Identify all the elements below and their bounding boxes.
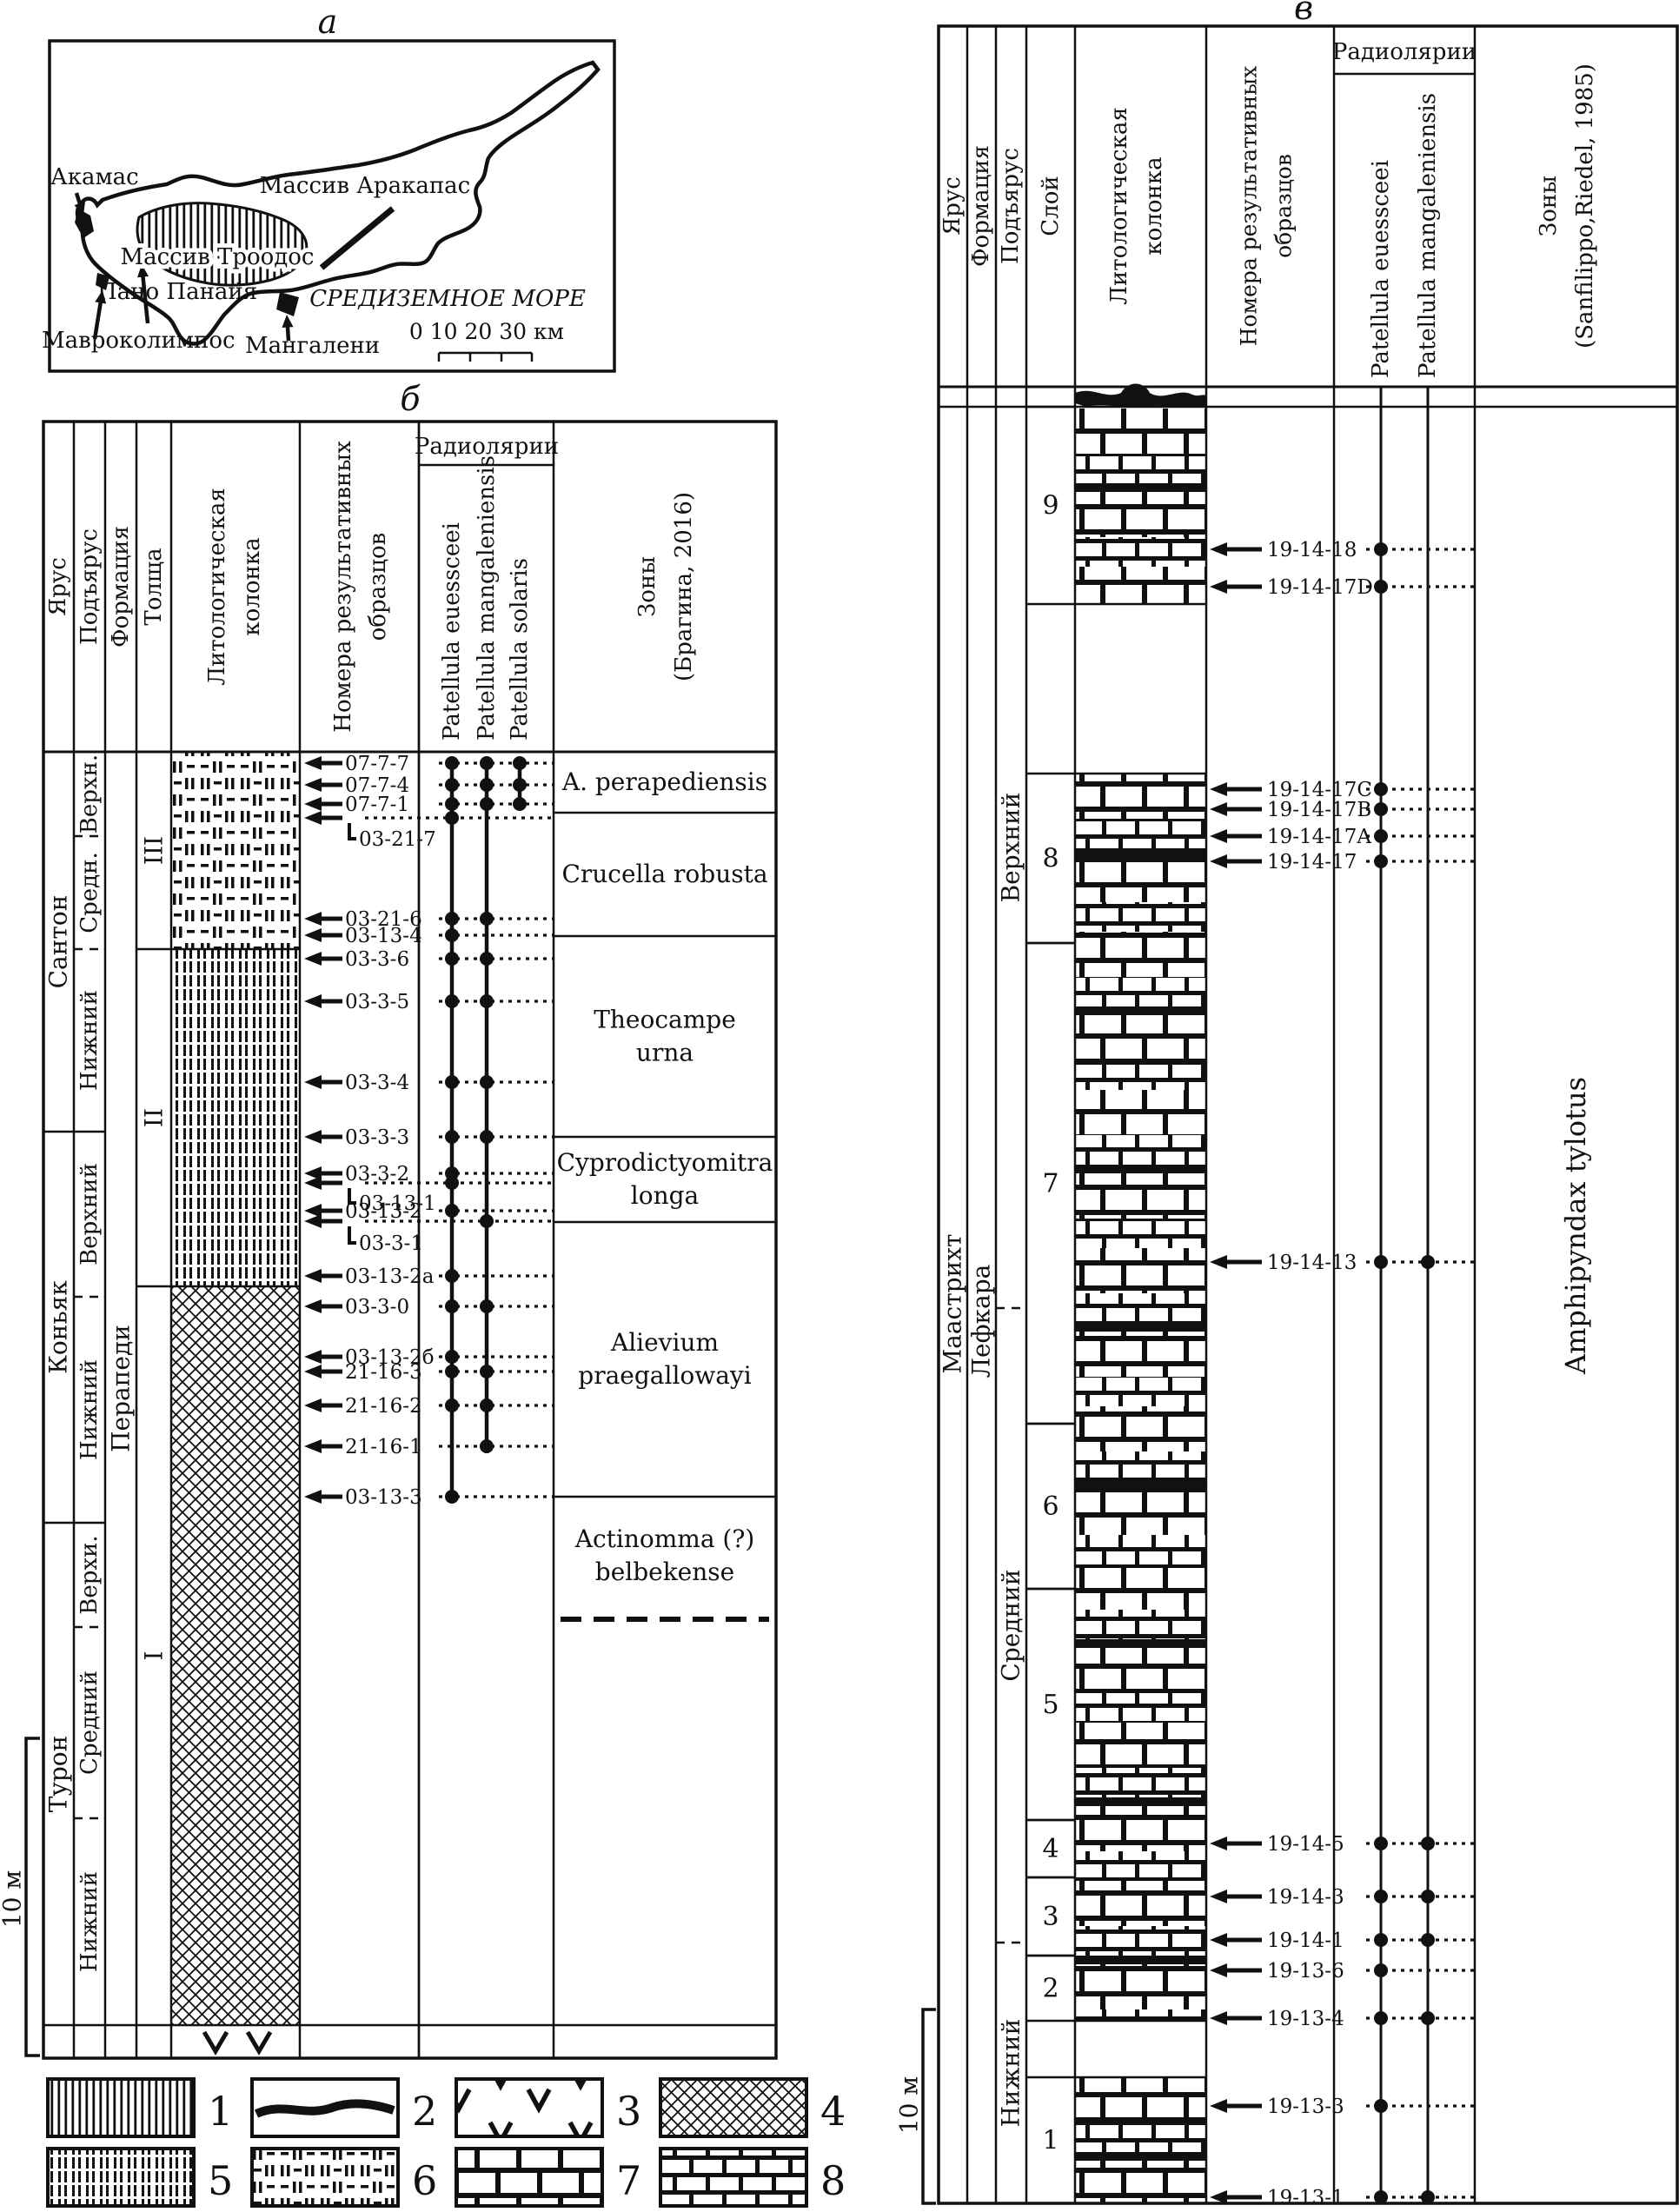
lith-brick-band bbox=[1075, 1332, 1206, 1377]
substage-label: Верхн. bbox=[76, 754, 103, 834]
zone-name: belbekense bbox=[595, 1558, 734, 1586]
unit-label: I bbox=[140, 1651, 169, 1660]
sample-label: 19-14-17B bbox=[1267, 799, 1371, 821]
lith-brick-band bbox=[1075, 902, 1206, 932]
lith-brick-band bbox=[1075, 1610, 1206, 1639]
substage-label: Нижний bbox=[76, 1359, 103, 1460]
occurrence-dot bbox=[480, 756, 494, 770]
map-label-troodos: Массив Троодос bbox=[121, 244, 315, 270]
header-samples-line1: Номера результативных bbox=[1237, 66, 1262, 347]
sample-label: 07-7-1 bbox=[345, 794, 409, 816]
header-substage: Подъярус bbox=[998, 148, 1024, 264]
occurrence-dot bbox=[445, 797, 459, 811]
scale-label: 10 м bbox=[895, 2076, 924, 2134]
lith-brick-band bbox=[1075, 1293, 1206, 1323]
sample-label: 07-7-7 bbox=[345, 753, 409, 775]
map-label-sea: СРЕДИЗЕМНОЕ МОРЕ bbox=[309, 286, 586, 312]
sample-label: 19-14-18 bbox=[1267, 539, 1357, 561]
substage-label: Нижний bbox=[76, 1871, 103, 1972]
legend-swatch bbox=[48, 2079, 194, 2136]
substage-label: Верхи. bbox=[76, 1535, 103, 1614]
occurrence-dot bbox=[445, 811, 459, 825]
lith-brick-band bbox=[1075, 2122, 1206, 2152]
sample-label: 19-13-6 bbox=[1267, 1960, 1344, 1983]
occurrence-dot bbox=[445, 994, 459, 1008]
header-radiolaria: Радиолярии bbox=[1332, 39, 1477, 65]
map-label-arakapas: Массив Аракапас bbox=[260, 173, 470, 199]
lith-brick-band bbox=[1075, 1490, 1206, 1535]
header-lith-line2: колонка bbox=[1141, 156, 1167, 255]
formation-label: Лефкара bbox=[967, 1265, 996, 1378]
lith-brick-band bbox=[1075, 848, 1206, 857]
header-species: Patellula mangaleniensis bbox=[1415, 93, 1441, 378]
lith-brick-band bbox=[1075, 1248, 1206, 1293]
lith-brick-band bbox=[1075, 1806, 1206, 1851]
sample-label: 03-3-6 bbox=[345, 948, 409, 971]
header-samples-line1: Номера результативных bbox=[330, 441, 356, 733]
sample-label: 19-14-5 bbox=[1267, 1833, 1344, 1856]
lith-brick-band bbox=[1075, 932, 1206, 977]
occurrence-dot bbox=[445, 778, 459, 792]
layer-number: 8 bbox=[1042, 844, 1058, 874]
sample-label: 03-3-2 bbox=[345, 1163, 409, 1186]
sample-label: 03-3-1 bbox=[359, 1232, 423, 1255]
figure-canvas: аАкамасМассив АракапасМассив ТроодосПано… bbox=[0, 0, 1679, 2212]
panel-v-title: в bbox=[1294, 0, 1313, 27]
header-lith-line1: Литологическая bbox=[1106, 107, 1132, 304]
occurrence-dot bbox=[445, 952, 459, 966]
occurrence-dot bbox=[480, 1299, 494, 1313]
lith-brick-band bbox=[1075, 2161, 1206, 2203]
header-species: Patellula mangaleniensis bbox=[474, 455, 500, 741]
lith-unit-fill bbox=[171, 1286, 300, 2025]
lith-brick-band bbox=[1075, 1090, 1206, 1135]
sample-label: 19-14-13 bbox=[1267, 1252, 1357, 1274]
occurrence-dot bbox=[445, 1176, 459, 1190]
lith-brick-band bbox=[1075, 1219, 1206, 1248]
layer-number: 6 bbox=[1042, 1491, 1058, 1522]
sample-label: 19-14-3 bbox=[1267, 1886, 1344, 1909]
header-lith-line2: колонка bbox=[239, 537, 265, 635]
lith-brick-band bbox=[1075, 1797, 1206, 1806]
sample-label: 21-16-3 bbox=[345, 1361, 422, 1384]
legend-swatch bbox=[660, 2149, 806, 2206]
map-label-mangaleni: Мангалени bbox=[245, 333, 380, 359]
lith-brick-band bbox=[1075, 2077, 1206, 2122]
header-samples-line2: образцов bbox=[1271, 154, 1297, 258]
sample-label: 19-14-17D bbox=[1267, 576, 1373, 599]
lith-brick-band bbox=[1075, 1006, 1206, 1015]
occurrence-dot bbox=[445, 928, 459, 942]
lith-brick-band bbox=[1075, 1564, 1206, 1610]
substage-label: Верхний bbox=[76, 1163, 103, 1265]
header-zones-line2: (Брагина, 2016) bbox=[671, 492, 697, 681]
header-formation: Формация bbox=[968, 145, 994, 267]
legend-number: 8 bbox=[820, 2157, 846, 2204]
lith-brick-band bbox=[1075, 454, 1206, 483]
occurrence-dot bbox=[513, 797, 527, 811]
sample-label: 19-13-3 bbox=[1267, 2096, 1344, 2118]
lith-brick-band bbox=[1075, 1481, 1206, 1490]
occurrence-dot bbox=[480, 1398, 494, 1412]
occurrence-dot bbox=[445, 1075, 459, 1089]
layer-number: 9 bbox=[1042, 491, 1058, 521]
lith-brick-band bbox=[1075, 1956, 1206, 1964]
layer-number: 4 bbox=[1042, 1834, 1058, 1864]
lith-brick-band bbox=[1075, 819, 1206, 848]
occurrence-dot bbox=[445, 1299, 459, 1313]
sample-label: 03-13-2a bbox=[345, 1265, 435, 1288]
sample-label: 03-3-0 bbox=[345, 1296, 409, 1319]
zone-name: Theocampe bbox=[594, 1006, 736, 1034]
substage-label: Средний bbox=[76, 1671, 103, 1775]
sample-label: 03-13-2 bbox=[345, 1200, 422, 1223]
sample-label: 19-13-4 bbox=[1267, 2008, 1344, 2030]
layer-number: 2 bbox=[1042, 1974, 1058, 2004]
occurrence-dot bbox=[480, 912, 494, 926]
lith-brick-band bbox=[1075, 492, 1206, 537]
occurrence-dot bbox=[445, 912, 459, 926]
layer-number: 7 bbox=[1042, 1169, 1058, 1199]
sample-label: 03-13-3 bbox=[345, 1486, 422, 1509]
header-samples-line2: образцов bbox=[365, 533, 391, 641]
lith-brick-band bbox=[1075, 537, 1206, 567]
scale-label: 10 м bbox=[0, 1870, 27, 1928]
stage-label: Турон bbox=[44, 1736, 73, 1813]
legend-number: 7 bbox=[616, 2157, 641, 2204]
legend-swatch bbox=[252, 2149, 398, 2206]
legend-number: 4 bbox=[820, 2088, 846, 2135]
lith-brick-band bbox=[1075, 1768, 1206, 1797]
zone-name: Alievium bbox=[610, 1328, 719, 1357]
lith-brick-band bbox=[1075, 1926, 1206, 1956]
lith-brick-band bbox=[1075, 774, 1206, 819]
sample-label: 03-21-7 bbox=[359, 828, 436, 851]
formation-label: Перапеди bbox=[107, 1325, 136, 1452]
occurrence-dot bbox=[445, 1490, 459, 1504]
lith-brick-band bbox=[1075, 483, 1206, 492]
substage-label: Средн. bbox=[76, 852, 103, 933]
lith-brick-band bbox=[1075, 1964, 1206, 2009]
lith-brick-band bbox=[1075, 1015, 1206, 1060]
legend-swatch bbox=[48, 2149, 194, 2206]
unit-label: II bbox=[140, 1108, 169, 1127]
lith-brick-band bbox=[1075, 1323, 1206, 1332]
occurrence-dot bbox=[480, 1130, 494, 1144]
header-stage: Ярус bbox=[939, 176, 966, 236]
panel-b-title: б bbox=[400, 380, 421, 418]
header-zones-line1: Зоны bbox=[634, 556, 660, 617]
zone-name: A. perapediensis bbox=[561, 767, 767, 796]
zone-name: urna bbox=[636, 1039, 693, 1067]
lith-brick-band bbox=[1075, 1851, 1206, 1881]
layer-number: 1 bbox=[1042, 2126, 1058, 2156]
sample-label: 03-3-4 bbox=[345, 1072, 409, 1094]
header-species: Patellula euessceei bbox=[1368, 160, 1394, 378]
occurrence-dot bbox=[480, 778, 494, 792]
sample-label: 21-16-1 bbox=[345, 1436, 422, 1458]
lith-brick-band bbox=[1075, 1173, 1206, 1219]
sample-label: 03-3-5 bbox=[345, 991, 409, 1013]
lith-brick-band bbox=[1075, 409, 1206, 454]
header-formation: Формация bbox=[108, 526, 134, 648]
header-unit: Толща bbox=[141, 548, 167, 625]
header-substage: Подъярус bbox=[76, 528, 103, 645]
legend-number: 3 bbox=[616, 2088, 641, 2135]
occurrence-dot bbox=[480, 1075, 494, 1089]
lith-brick-band bbox=[1075, 1406, 1206, 1451]
layer-number: 3 bbox=[1042, 1902, 1058, 1932]
legend-number: 5 bbox=[208, 2157, 233, 2204]
occurrence-dot bbox=[480, 1214, 494, 1228]
header-lith-line1: Литологическая bbox=[204, 488, 230, 685]
substage-label: Верхний bbox=[997, 793, 1025, 903]
occurrence-dot bbox=[480, 1439, 494, 1453]
occurrence-dot bbox=[445, 1130, 459, 1144]
substage-label: Нижний bbox=[76, 990, 103, 1091]
stage-label: Коньяк bbox=[44, 1280, 73, 1374]
sample-label: 03-13-4 bbox=[345, 925, 422, 947]
panel-map: аАкамасМассив АракапасМассив ТроодосПано… bbox=[42, 3, 614, 371]
panel-a-title: а bbox=[318, 3, 338, 41]
zone-name: Cyprodictyomitra bbox=[557, 1148, 773, 1177]
header-zones-line2: (Sanfilippo,Riedel, 1985) bbox=[1572, 63, 1598, 349]
lith-brick-band bbox=[1075, 977, 1206, 1006]
lith-brick-band bbox=[1075, 1639, 1206, 1648]
substage-label: Нижний bbox=[997, 2019, 1025, 2128]
lith-brick-band bbox=[1075, 1165, 1206, 1173]
layer-number: 5 bbox=[1042, 1690, 1058, 1720]
zone-name: Actinomma (?) bbox=[574, 1524, 755, 1553]
lith-brick-band bbox=[1075, 1135, 1206, 1165]
occurrence-dot bbox=[480, 952, 494, 966]
sample-label: 19-13-1 bbox=[1267, 2187, 1344, 2209]
legend-swatch bbox=[456, 2149, 602, 2206]
legend-swatch bbox=[660, 2079, 806, 2136]
lith-brick-band bbox=[1075, 1881, 1206, 1926]
zone-name: longa bbox=[631, 1181, 699, 1210]
sample-label: 21-16-2 bbox=[345, 1395, 422, 1418]
lith-brick-band bbox=[1075, 567, 1206, 604]
lith-brick-band bbox=[1075, 1377, 1206, 1406]
sample-label: 19-14-17 bbox=[1267, 851, 1357, 874]
lith-brick-band bbox=[1075, 1693, 1206, 1723]
header-species: Patellula solaris bbox=[507, 558, 533, 741]
occurrence-dot bbox=[445, 1398, 459, 1412]
occurrence-dot bbox=[445, 1350, 459, 1364]
map-label-akamas: Акамас bbox=[50, 164, 139, 190]
stage-label: Маастрихт bbox=[939, 1233, 967, 1373]
zone-name: praegallowayi bbox=[578, 1361, 751, 1390]
map-label-pano: Пано Панайя bbox=[97, 279, 257, 305]
map-label-mavro: Мавроколимпос bbox=[42, 328, 236, 354]
legend-swatch bbox=[456, 2079, 602, 2136]
lith-unit-fill bbox=[171, 949, 300, 1286]
occurrence-dot bbox=[513, 778, 527, 792]
lith-brick-band bbox=[1075, 2009, 1206, 2021]
stage-label: Сантон bbox=[44, 895, 73, 989]
map-scale-text: 0 10 20 30 км bbox=[409, 319, 564, 344]
lith-brick-band bbox=[1075, 1648, 1206, 1693]
lith-brick-band bbox=[1075, 1723, 1206, 1768]
sample-label: 19-14-17A bbox=[1267, 826, 1371, 848]
header-layer: Слой bbox=[1038, 176, 1064, 236]
sample-label: 03-3-3 bbox=[345, 1126, 409, 1149]
stratigraphic-figure: аАкамасМассив АракапасМассив ТроодосПано… bbox=[0, 0, 1679, 2212]
lith-unit-fill bbox=[171, 752, 300, 949]
occurrence-dot bbox=[445, 1269, 459, 1283]
lith-brick-band bbox=[1075, 1451, 1206, 1481]
lith-brick-band bbox=[1075, 2152, 1206, 2161]
occurrence-dot bbox=[480, 994, 494, 1008]
legend-number: 2 bbox=[412, 2088, 437, 2135]
zone-name: Crucella robusta bbox=[561, 860, 767, 888]
legend-number: 6 bbox=[412, 2157, 437, 2204]
occurrence-dot bbox=[480, 1365, 494, 1378]
lith-brick-band bbox=[1075, 1060, 1206, 1090]
header-zones-line1: Зоны bbox=[1536, 176, 1562, 236]
header-stage: Ярус bbox=[45, 557, 71, 616]
occurrence-dot bbox=[445, 756, 459, 770]
occurrence-dot bbox=[513, 756, 527, 770]
legend-number: 1 bbox=[208, 2088, 233, 2135]
sample-label: 19-14-1 bbox=[1267, 1930, 1344, 1952]
header-species: Patellula euessceei bbox=[439, 522, 465, 741]
lith-brick-band bbox=[1075, 1535, 1206, 1564]
occurrence-dot bbox=[480, 797, 494, 811]
occurrence-dot bbox=[445, 1365, 459, 1378]
substage-label: Средний bbox=[997, 1569, 1025, 1681]
zone-name: Amphipyndax tylotus bbox=[1559, 1077, 1592, 1375]
occurrence-dot bbox=[445, 1204, 459, 1218]
unit-label: III bbox=[140, 836, 169, 865]
lith-brick-band bbox=[1075, 857, 1206, 902]
